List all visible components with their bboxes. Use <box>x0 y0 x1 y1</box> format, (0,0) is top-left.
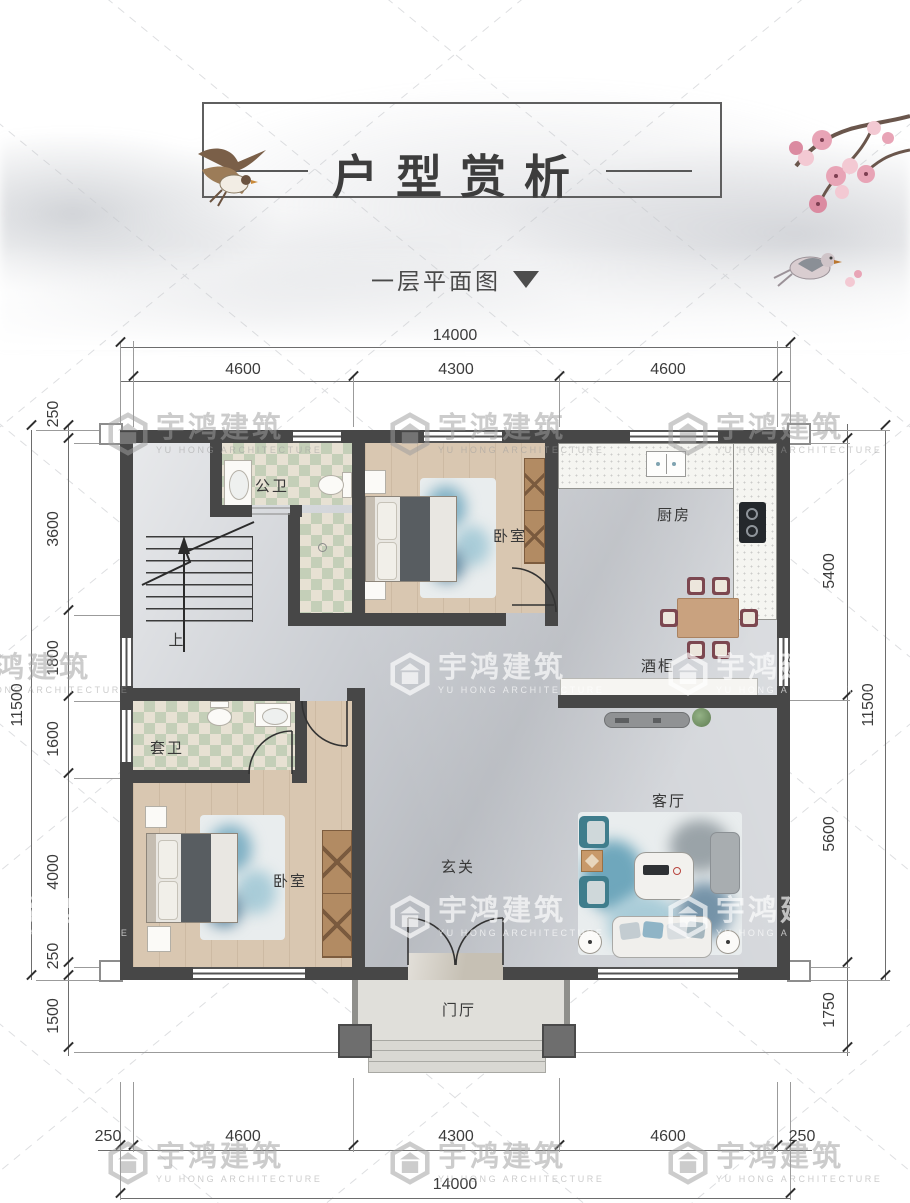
label-bedroom-bottom: 卧室 <box>260 873 320 891</box>
label-bath-ensuite: 套卫 <box>137 740 197 758</box>
label-kitchen: 厨房 <box>644 507 704 525</box>
label-porch: 门厅 <box>429 1002 489 1020</box>
label-living: 客厅 <box>639 793 699 811</box>
label-wine-cabinet: 酒柜 <box>628 658 688 676</box>
door-swing-overlay <box>0 0 910 1203</box>
stair-break-line <box>142 522 254 585</box>
label-foyer: 玄关 <box>428 859 488 877</box>
floorplan-poster: 户型赏析 一层平面图 <box>0 0 910 1203</box>
stair-up-arrow <box>178 536 190 554</box>
label-stairs-up: 上 <box>162 632 192 650</box>
label-bedroom-top: 卧室 <box>480 528 540 546</box>
label-bath-public: 公卫 <box>242 478 302 496</box>
